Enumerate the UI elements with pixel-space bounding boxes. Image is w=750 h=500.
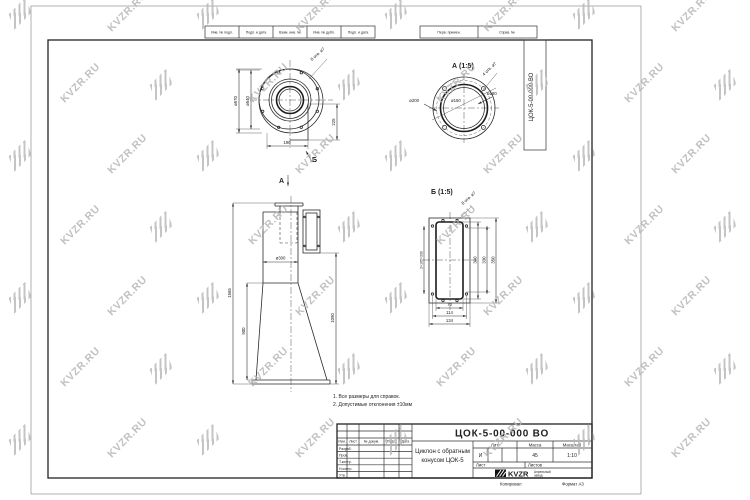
tb-mass-header: Масса (529, 442, 542, 447)
notes: 1. Все размеры для справок. 2. Допустимы… (333, 394, 413, 408)
filing-cell-label: Инв. № подл. (211, 31, 233, 35)
view-b-title: Б (1:5) (431, 189, 453, 196)
holes-note-b: 8 отв. ø7 (460, 190, 477, 206)
holes-note-a: 4 отв. ø7 (481, 61, 498, 77)
ref-cell-label: Справ. № (499, 31, 515, 35)
dim-cone-height: 900 (241, 327, 246, 335)
dim-dia-flange: ø200 (409, 98, 419, 103)
dim-dia-body: ø540 (245, 95, 250, 105)
filing-strip: Инв. № подл. Подп. и дата Взам. инв. № И… (205, 26, 375, 38)
dim-width: 190 (283, 140, 291, 145)
view-arrow-b: Б (312, 157, 317, 164)
company-logo-text: KVZR (508, 470, 529, 479)
copied-label: Копировал (500, 482, 522, 487)
view-a-title: А (1:5) (452, 63, 474, 70)
view-a-flange: А (1:5) ø200 ø150 ø180 4 отв. ø7 (409, 61, 499, 143)
tb-sheet-label: Лист (476, 463, 485, 468)
filing-cell-label: Инв. № дубл. (313, 31, 335, 35)
dim-holes-pitch: 2×165=330 (420, 251, 424, 269)
front-view-cyclone: А ø300 900 1565 1090 (227, 175, 339, 392)
tb-scale-header: Масштаб (563, 442, 582, 447)
dim-dia-pipe-a: ø150 (451, 98, 461, 103)
holes-note: 8 отв. ø7 (309, 46, 326, 62)
tb-header-data: Дата (402, 440, 410, 444)
company-line2: завод (534, 474, 543, 478)
dim-total-height: 1565 (227, 288, 232, 298)
tb-header-izm: Изм. (338, 440, 346, 444)
tb-name-line2: конусом ЦОК-5 (421, 458, 464, 464)
tb-row-utv: Утв. (339, 474, 346, 478)
dim-dia-outer: ø570 (233, 95, 238, 105)
tb-header-dokum: № докум. (364, 440, 379, 444)
view-b-outlet-flange: Б (1:5) 300 330 350 2×165=330 70 114 134… (420, 189, 500, 327)
dim-right-height: 1090 (330, 313, 335, 323)
dim-plate-height: 350 (491, 256, 496, 264)
tb-name-line1: Циклон с обратным (415, 449, 470, 455)
dim-holes-span: 114 (446, 310, 453, 315)
note-line-1: 1. Все размеры для справок. (333, 394, 400, 400)
tb-sheets-label: Листов (528, 463, 543, 468)
tb-lit-value: И (479, 453, 483, 459)
tb-row-prov: Пров. (339, 454, 348, 458)
top-view-scroll: ø570 ø540 225 190 8 отв. ø7 Б (233, 46, 340, 164)
dim-holes-height: 330 (482, 256, 487, 264)
tb-scale-value: 1:10 (567, 453, 577, 459)
dim-dia-pipe: ø300 (276, 256, 286, 261)
dim-slot-height: 300 (473, 256, 478, 264)
format-label: Формат А3 (562, 482, 584, 487)
ref-cell-label: Перв. примен. (437, 31, 460, 35)
technical-drawing: Инв. № подл. Подп. и дата Взам. инв. № И… (0, 0, 750, 500)
designation-stamp: ЦОК-5-00-000 ВО (529, 72, 535, 121)
tb-header-podp: Подп. (387, 440, 396, 444)
dim-plate-width: 134 (446, 318, 454, 323)
dim-dia-bolts: ø180 (487, 91, 497, 96)
tb-mass-value: 45 (532, 453, 538, 459)
tb-row-nkontr: Н.контр. (339, 467, 352, 471)
tb-designation: ЦОК-5-00-000 ВО (455, 429, 549, 440)
tb-header-list: Лист (349, 440, 357, 444)
company-logo: KVZR Апрельный завод (495, 470, 551, 479)
filing-cell-label: Взам. инв. № (279, 31, 301, 35)
dim-slot-width: 70 (447, 302, 452, 307)
tb-lit-header: Лит. (491, 442, 499, 447)
drawing-sheet-page: Инв. № подл. Подп. и дата Взам. инв. № И… (0, 0, 750, 500)
dim-height: 225 (331, 118, 336, 126)
filing-cell-label: Подп. и дата (348, 31, 369, 35)
view-arrow-a: А (279, 178, 284, 185)
filing-cell-label: Подп. и дата (246, 31, 267, 35)
sheet-frame (31, 6, 641, 494)
note-line-2: 2. Допустимые отклонения ±10мм (333, 402, 413, 408)
tb-row-tkontr: Т.контр. (339, 460, 352, 464)
title-block: Изм. Лист № докум. Подп. Дата Разраб. Пр… (337, 424, 592, 487)
tb-row-razrab: Разраб. (339, 447, 352, 451)
